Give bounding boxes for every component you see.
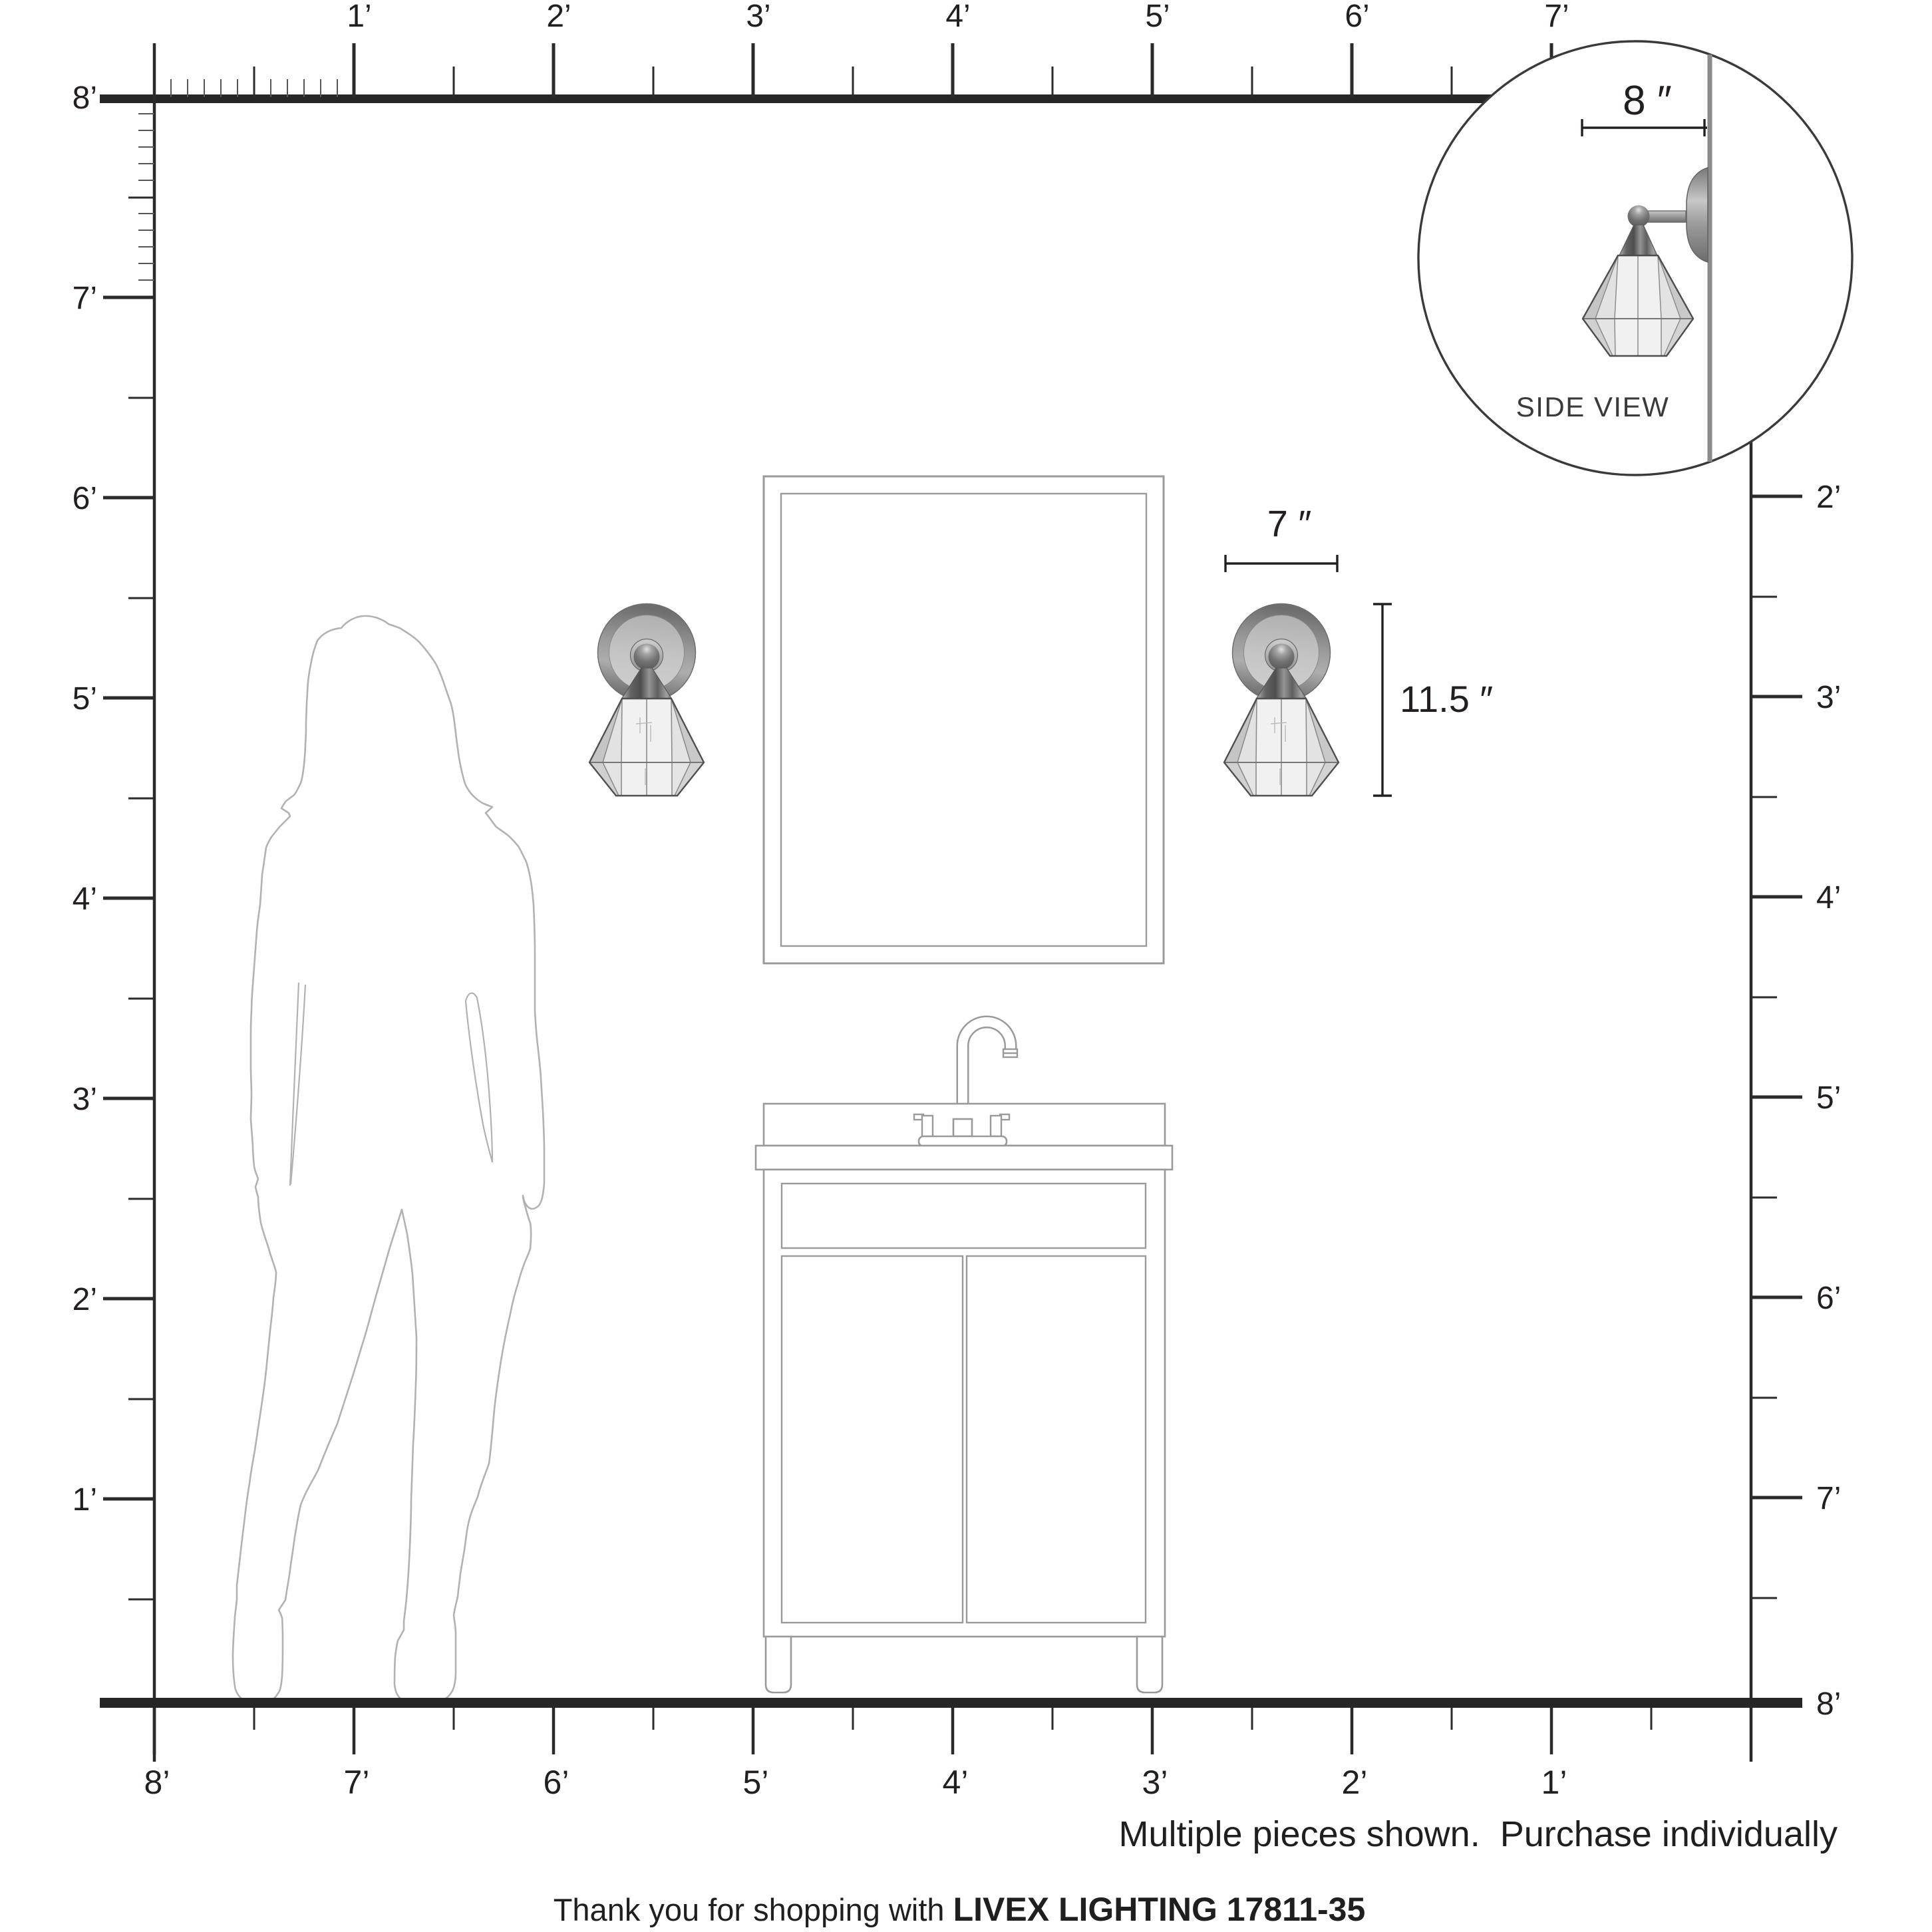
svg-text:8’: 8’: [1816, 1687, 1841, 1722]
svg-text:5’: 5’: [743, 1764, 769, 1801]
svg-text:7’: 7’: [1816, 1481, 1841, 1516]
svg-text:Thank you for shopping with LI: Thank you for shopping with LIVEX LIGHTI…: [554, 1891, 1366, 1928]
svg-text:8 ″: 8 ″: [1623, 78, 1672, 124]
svg-text:3’: 3’: [746, 0, 770, 34]
svg-text:4’: 4’: [943, 1764, 969, 1801]
svg-text:3’: 3’: [73, 1082, 97, 1117]
svg-text:7’: 7’: [1544, 0, 1569, 34]
svg-text:3’: 3’: [1142, 1764, 1168, 1801]
svg-text:2’: 2’: [73, 1282, 97, 1317]
svg-text:4’: 4’: [1816, 880, 1841, 915]
svg-text:6’: 6’: [544, 1764, 569, 1801]
svg-text:1’: 1’: [1541, 1764, 1567, 1801]
svg-text:4’: 4’: [73, 882, 97, 917]
svg-text:6’: 6’: [1816, 1281, 1841, 1316]
svg-text:6’: 6’: [73, 481, 97, 516]
svg-text:5’: 5’: [1816, 1080, 1841, 1116]
svg-text:4’: 4’: [945, 0, 970, 34]
svg-text:2’: 2’: [546, 0, 571, 34]
svg-text:7’: 7’: [73, 281, 97, 316]
svg-text:7’: 7’: [344, 1764, 370, 1801]
svg-text:8’: 8’: [73, 80, 97, 116]
svg-text:2’: 2’: [1816, 480, 1841, 515]
svg-text:1’: 1’: [347, 0, 371, 34]
svg-text:3’: 3’: [1816, 680, 1841, 715]
svg-text:11.5 ″: 11.5 ″: [1400, 678, 1493, 720]
svg-text:7 ″: 7 ″: [1267, 502, 1312, 544]
svg-text:2’: 2’: [1342, 1764, 1368, 1801]
svg-text:6’: 6’: [1345, 0, 1369, 34]
svg-text:8’: 8’: [144, 1764, 170, 1801]
svg-text:1’: 1’: [73, 1482, 97, 1518]
svg-text:Multiple pieces shown. Purcha: Multiple pieces shown. Purchase individu…: [1118, 1814, 1838, 1854]
svg-text:SIDE VIEW: SIDE VIEW: [1516, 391, 1670, 422]
svg-text:5’: 5’: [73, 681, 97, 717]
svg-text:5’: 5’: [1145, 0, 1170, 34]
